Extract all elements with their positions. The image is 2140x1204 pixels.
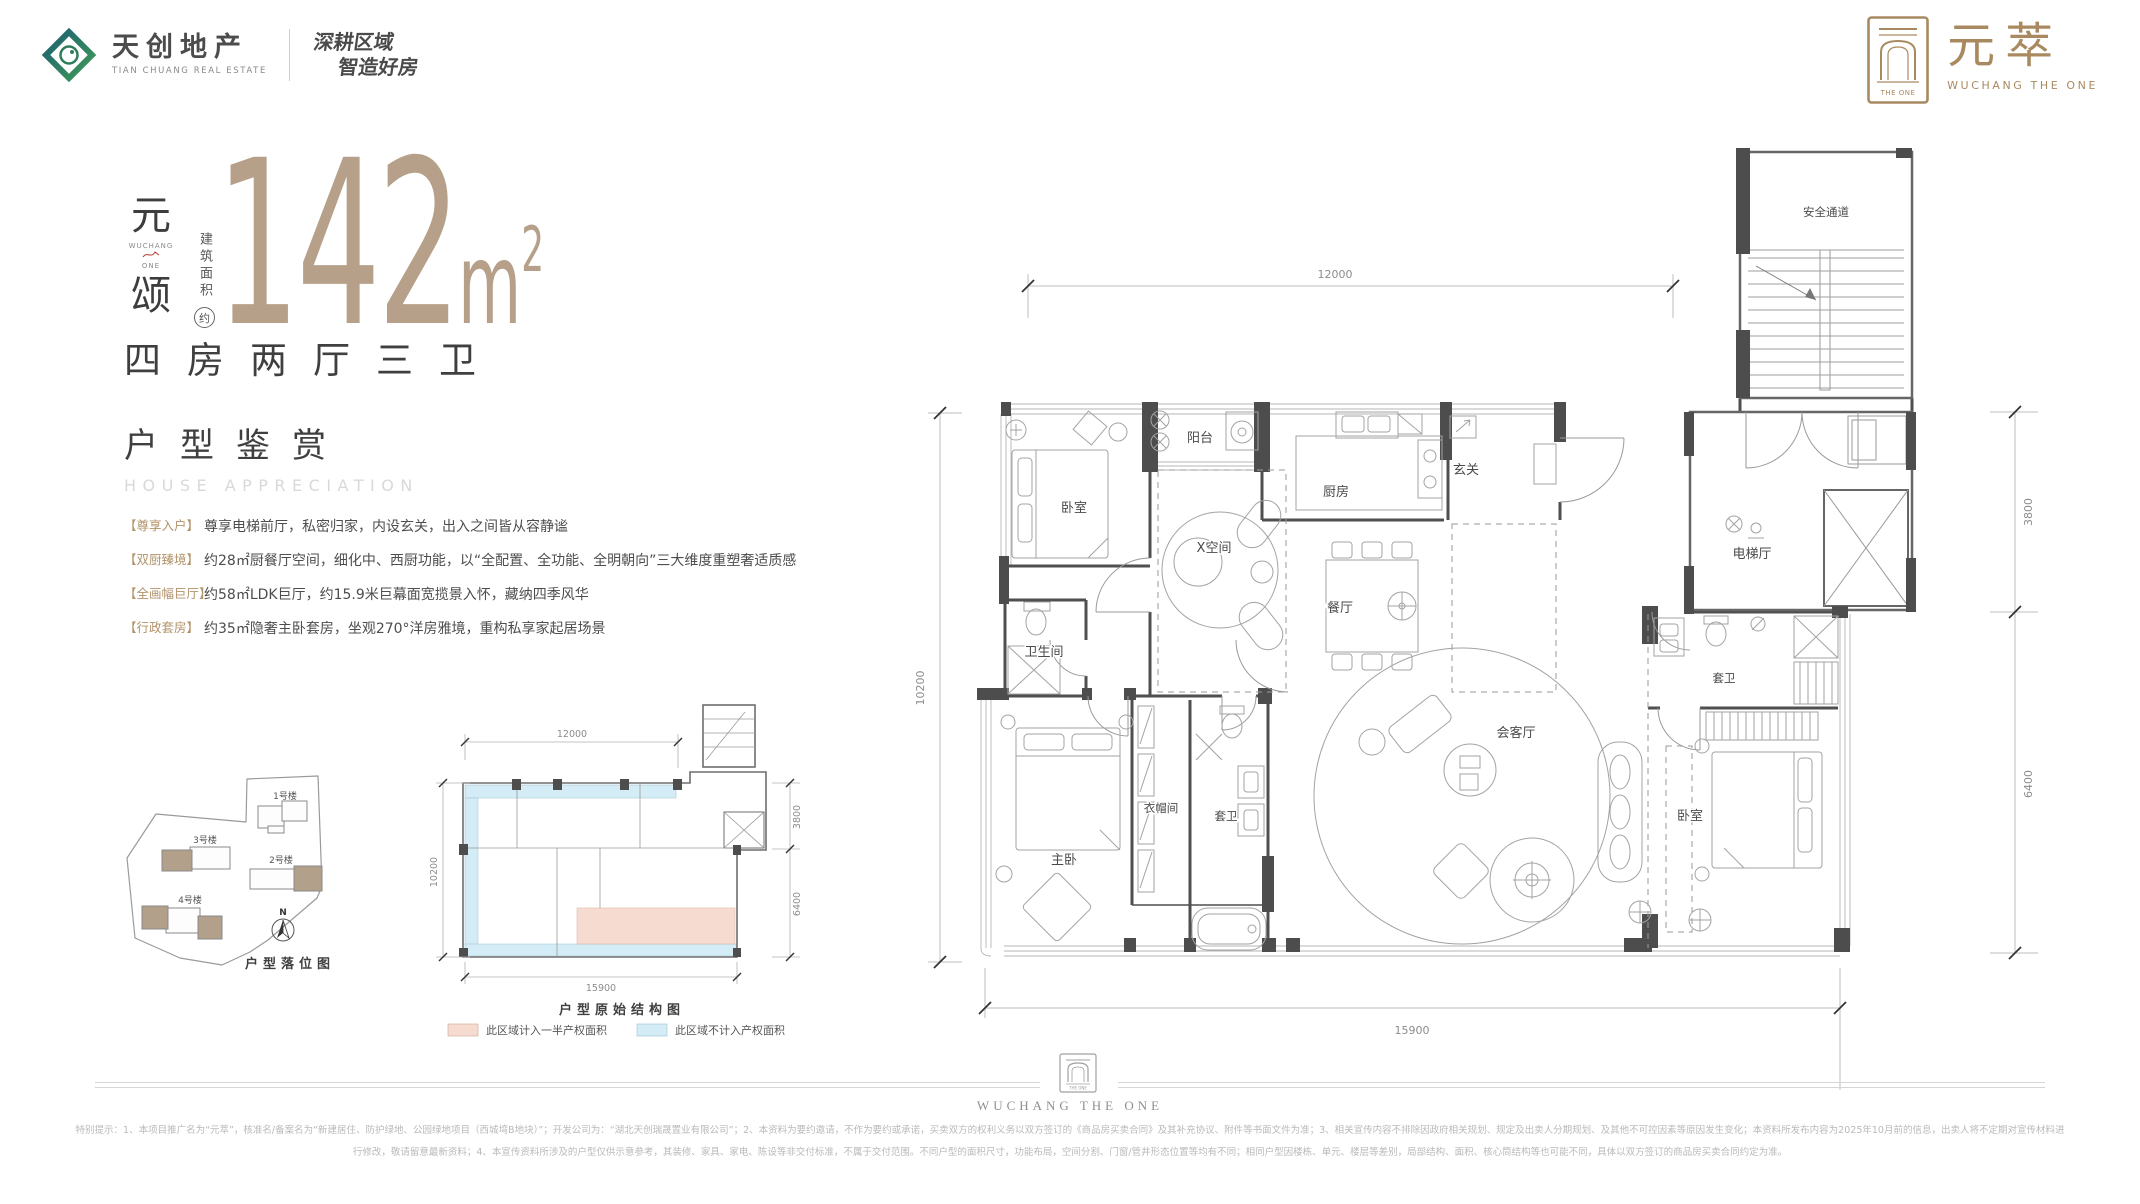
feature-text: 约28㎡厨餐厅空间，细化中、西厨功能，以“全配置、全功能、全明朝向”三大维度重塑… [204,553,796,569]
furniture-kitchen [1296,412,1442,510]
legend-label-excluded-area: 此区域不计入产权面积 [675,1023,785,1037]
slogan-line2: 智造好房 [336,55,420,80]
building-2 [250,866,322,891]
furniture-elevator-hall [1726,516,1764,538]
area-number: 142m2 [216,158,544,331]
room-label-x-space: X空间 [1197,541,1232,556]
feature-tag: 【行政套房】 [124,620,199,637]
building-3-label: 3号楼 [193,834,217,846]
area-label-block: 建筑面积 约 [194,232,215,328]
series-sub-bottom: ONE [142,262,160,270]
furniture-master [996,715,1133,942]
mini-dim-top: 12000 [557,729,587,740]
furniture-cloakroom [1138,706,1154,892]
series-brand-column: 元 WUCHANG ONE 颂 [122,194,180,318]
project-name: 元萃 [1947,20,2098,73]
feature-item: 【全画幅巨厅】 约58㎡LDK巨厅，约15.9米巨幕面宽揽景入怀，藏纳四季风华 [124,586,824,605]
series-sub-top: WUCHANG [129,242,174,250]
series-sub: WUCHANG ONE [122,242,180,270]
developer-name-en: TIAN CHUANG REAL ESTATE [112,66,267,76]
disclaimer-line2: 行修改，敬请留意最新资料；4、本宣传资料所涉及的户型仅供示意参考，其装修、家具、… [0,1144,2140,1158]
feature-text: 尊享电梯前厅，私密归家，内设玄关，出入之间皆从容静谧 [204,519,568,535]
developer-name-block: 天创地产 TIAN CHUANG REAL ESTATE [112,34,267,75]
stair-treads [1748,250,1904,388]
footer-brand-en: WUCHANG THE ONE [0,1098,2140,1114]
mini-dim-right-upper: 3800 [792,805,803,829]
mini-dim-bottom: 15900 [586,983,616,994]
legend: 此区域计入一半产权面积 此区域不计入产权面积 [448,1023,785,1037]
dashed-zones [1158,470,1692,948]
legend-swatch-half-area [448,1024,478,1036]
room-label-bathroom: 卫生间 [1024,645,1063,660]
room-label-cloakroom: 衣帽间 [1144,801,1179,815]
logo-dot [70,50,74,54]
dim-ticks [934,280,2021,1014]
developer-logo-block: 天创地产 TIAN CHUANG REAL ESTATE 深耕区域 智造好房 [42,24,420,86]
building-3 [162,847,230,871]
area-unit-sup: 2 [521,213,544,286]
approx-badge: 约 [194,307,215,328]
feature-text: 约35㎡隐奢主卧套房，坐观270°洋房雅境，重构私享家起居场景 [204,621,606,637]
furniture-ensuite-r [1654,616,1838,704]
building-1-label: 1号楼 [273,790,297,802]
section-title: 户型鉴赏 [124,418,348,467]
room-label-balcony: 阳台 [1187,431,1213,446]
legend-label-half-area: 此区域计入一半产权面积 [486,1023,607,1037]
furniture-bedroom-tl [1006,411,1127,558]
building-4-label: 4号楼 [178,894,202,906]
dim-top: 12000 [1318,268,1353,281]
room-label-elevator-hall: 电梯厅 [1732,547,1771,562]
series-char-bottom: 颂 [122,274,180,318]
feature-item: 【行政套房】 约35㎡隐奢主卧套房，坐观270°洋房雅境，重构私享家起居场景 [124,620,824,639]
site-map-caption: 户型落位图 [245,956,335,972]
main-floor-plan: 12000 10200 3800 6400 15900 [900,140,2140,1100]
structural-mini-plan: 12000 10200 15900 3800 6400 户型原始结构图 此区域计… [425,695,820,1045]
dim-bottom: 15900 [1395,1024,1430,1037]
room-label-ensuite-master: 套卫 [1215,809,1238,823]
header-divider [289,29,290,81]
legend-swatch-excluded-area [637,1024,667,1036]
poster-canvas: 天创地产 TIAN CHUANG REAL ESTATE 深耕区域 智造好房 T… [0,0,2140,1204]
developer-name: 天创地产 [112,34,267,62]
room-label-foyer: 玄关 [1453,463,1479,478]
project-logo-block: THE ONE 元萃 WUCHANG THE ONE [1867,16,2098,104]
north-compass-icon: N [272,908,294,941]
project-name-en: WUCHANG THE ONE [1947,79,2098,92]
red-flourish-icon [142,251,160,259]
room-label-fire-stair: 安全通道 [1803,205,1849,219]
furniture-bedroom-r [1689,712,1822,931]
area-label-vertical: 建筑面积 [195,232,214,300]
shaded-areas [465,785,737,956]
site-location-map: 1号楼 2号楼 3号楼 4号楼 N 户型落位图 [110,745,460,983]
project-name-block: 元萃 WUCHANG THE ONE [1947,16,2098,92]
dim-right-upper: 3800 [2022,498,2035,526]
room-label-living: 会客厅 [1496,725,1535,741]
room-label-bedroom-r: 卧室 [1677,808,1703,824]
dim-right-lower: 6400 [2022,770,2035,798]
room-label-dining: 餐厅 [1327,600,1353,616]
project-emblem-icon: THE ONE [1867,16,1929,104]
footer-emblem-text: THE ONE [1068,1086,1087,1091]
room-label-master: 主卧 [1051,853,1077,868]
feature-list: 【尊享入户】 尊享电梯前厅，私密归家，内设玄关，出入之间皆从容静谧 【双厨臻境】… [124,518,824,654]
dim-left: 10200 [914,671,927,706]
interior-walls [981,398,1912,946]
layout-text: 四房两厅三卫 [124,330,502,384]
north-label: N [279,908,287,918]
developer-slogan: 深耕区域 智造好房 [308,30,423,80]
building-1 [258,801,307,833]
series-char-top: 元 [122,194,180,238]
area-value-block: 142m2 [216,158,576,336]
footer-rule-left [95,1082,1040,1088]
core-block [1690,152,1912,610]
building-2-label: 2号楼 [269,854,293,866]
structure-caption: 户型原始结构图 [559,1002,685,1018]
furniture-ensuite-master [1192,706,1266,950]
footer-rule-right [1118,1082,2045,1088]
emblem-text: THE ONE [1880,89,1916,97]
room-label-kitchen: 厨房 [1323,484,1349,500]
feature-tag: 【尊享入户】 [124,518,199,535]
feature-item: 【双厨臻境】 约28㎡厨餐厅空间，细化中、西厨功能，以“全配置、全功能、全明朝向… [124,552,824,571]
logo-ring [61,47,78,64]
mini-dim-right-lower: 6400 [792,892,803,916]
developer-logo-icon [42,28,96,82]
room-label-bedroom-tl: 卧室 [1061,500,1087,516]
feature-text: 约58㎡LDK巨厅，约15.9米巨幕面宽揽景入怀，藏纳四季风华 [204,587,589,603]
mini-dim-left: 10200 [429,857,440,887]
furniture-x-space [1162,494,1289,655]
wall-piers [977,148,1916,952]
building-4 [142,906,222,939]
section-subtitle: HOUSE APPRECIATION [124,476,419,495]
feature-tag: 【全画幅巨厅】 [124,586,212,603]
footer-emblem-icon: THE ONE [1056,1052,1100,1096]
slogan-line1: 深耕区域 [312,30,395,54]
feature-item: 【尊享入户】 尊享电梯前厅，私密归家，内设玄关，出入之间皆从容静谧 [124,518,824,537]
room-label-ensuite-r: 套卫 [1713,671,1736,685]
feature-tag: 【双厨臻境】 [124,552,199,569]
disclaimer-line1: 特别提示：1、本项目推广名为“元萃”，核准名/备案名为“新建居住、防护绿地、公园… [0,1122,2140,1136]
dim-lines [928,274,2038,1090]
